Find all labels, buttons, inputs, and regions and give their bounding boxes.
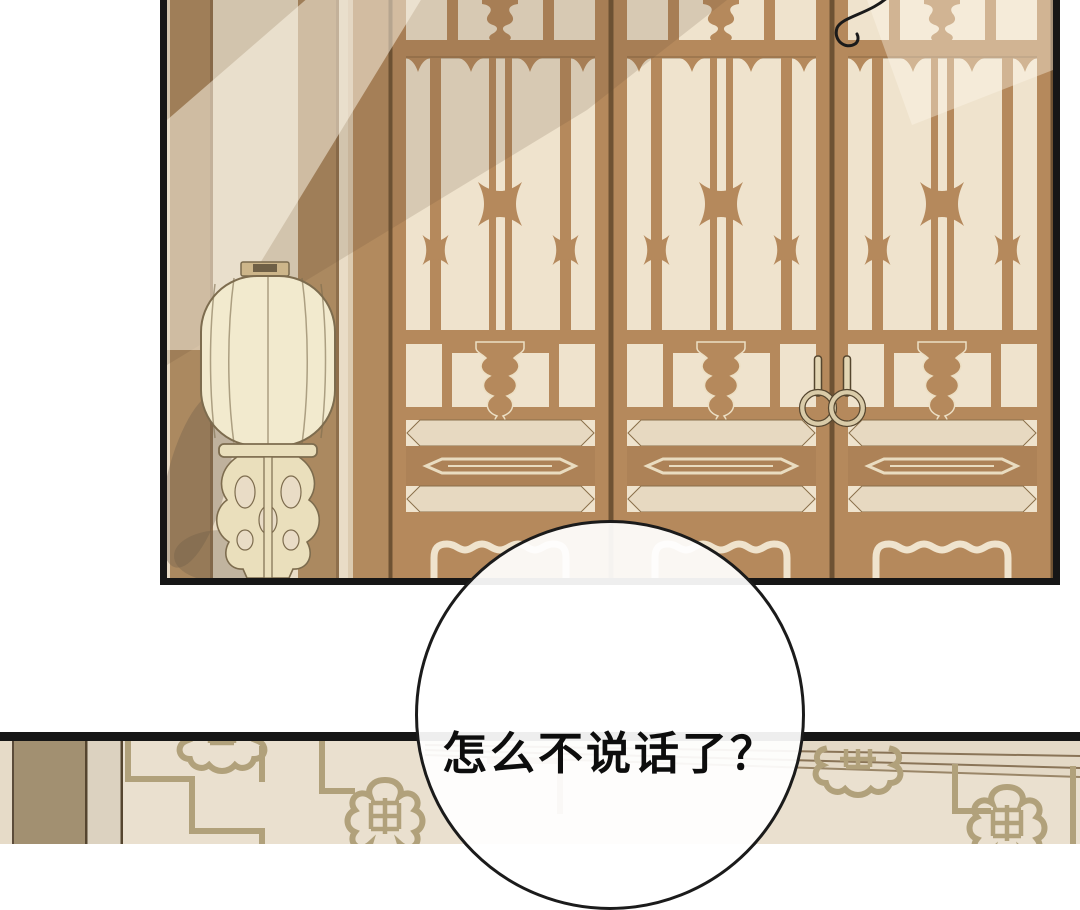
corner-pillar	[0, 741, 123, 844]
door-leaf-middle	[611, 0, 832, 578]
top-panel	[160, 0, 1060, 585]
door-scene	[167, 0, 1053, 578]
comic-page: 怎么不说话了？	[0, 0, 1080, 844]
speech-bubble: 怎么不说话了？	[415, 520, 805, 910]
speech-bubble-tail	[815, 0, 915, 60]
wall-lantern	[201, 262, 335, 578]
speech-bubble-text: 怎么不说话了？	[418, 717, 802, 782]
